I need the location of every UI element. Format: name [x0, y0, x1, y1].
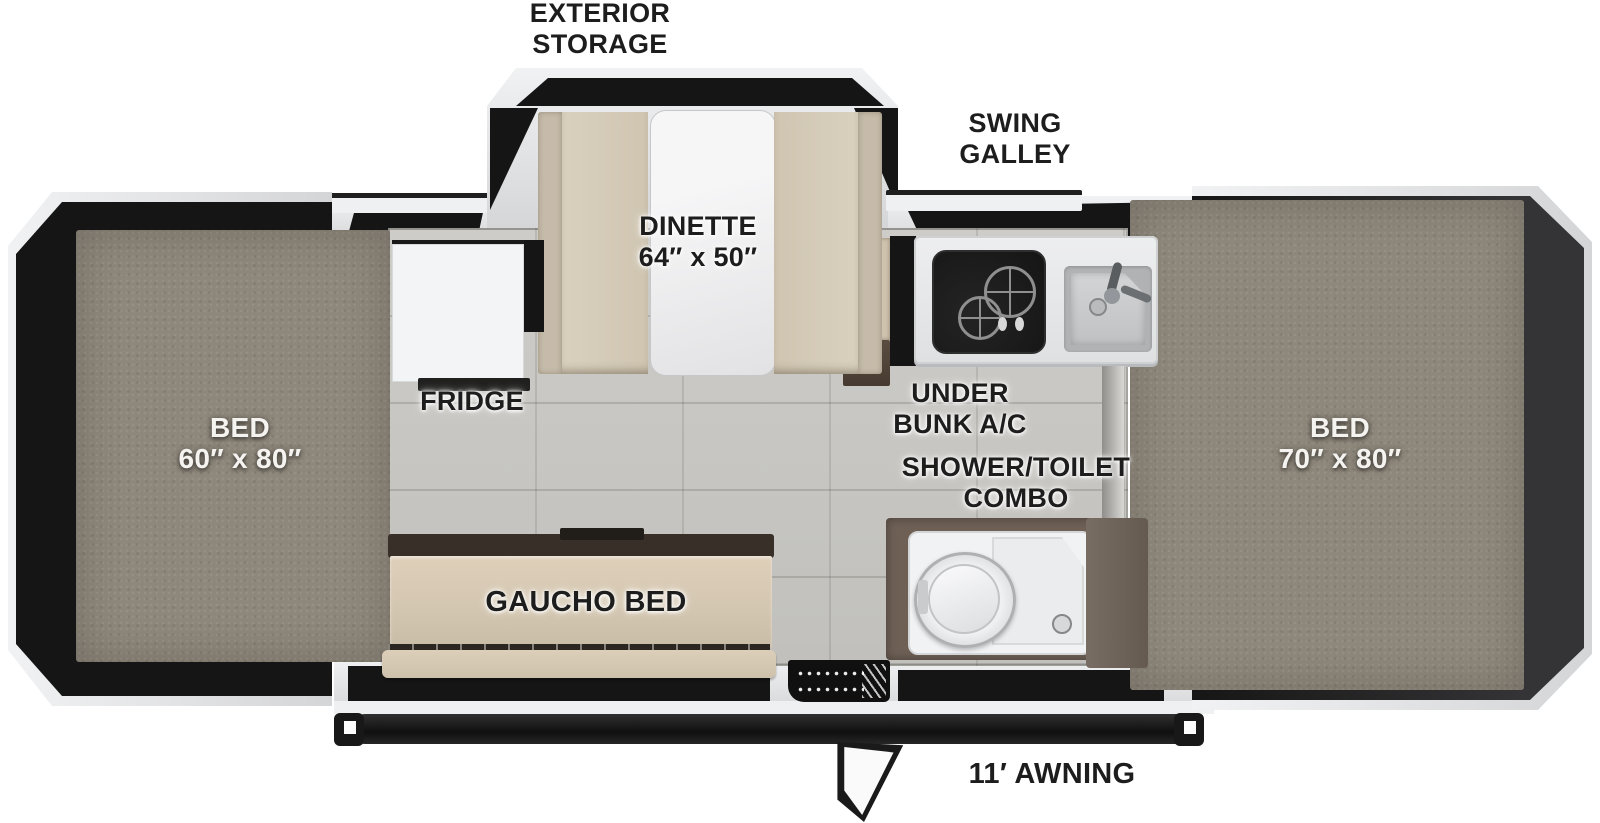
- label-under-bunk-ac: UNDER BUNK A/C: [893, 378, 1026, 440]
- label-fridge: FRIDGE: [420, 386, 524, 417]
- fridge-box: [392, 240, 524, 382]
- stove-knob-left: [998, 317, 1007, 331]
- awning-roller-bar: [350, 714, 1204, 744]
- toilet-hinge-icon: [918, 580, 928, 614]
- awning-bracket-left: [334, 713, 364, 746]
- gaucho-bed-seat-edge: [382, 650, 776, 678]
- label-swing-galley: SWING GALLEY: [959, 108, 1070, 170]
- gaucho-bed-rail-box: [560, 528, 644, 540]
- sink-drain-icon: [1089, 298, 1107, 316]
- awning-bracket-right: [1174, 713, 1204, 746]
- awning-bracket-right-notch: [1184, 721, 1196, 734]
- step-mat-hatch: [862, 664, 886, 698]
- label-bed-right: BED 70″ x 80″: [1279, 412, 1402, 474]
- fridge-side-panel: [524, 240, 544, 332]
- label-bed-left: BED 60″ x 80″: [179, 412, 302, 474]
- step-mat-dots-row2: [796, 685, 864, 695]
- stove-cooktop: [932, 250, 1046, 354]
- label-shower-toilet-combo: SHOWER/TOILET COMBO: [902, 452, 1130, 514]
- toilet-lid-icon: [928, 564, 1000, 634]
- step-mat-dots-row1: [796, 669, 864, 679]
- faucet-base-icon: [1104, 288, 1120, 304]
- label-exterior-storage: EXTERIOR STORAGE: [530, 0, 670, 60]
- label-dinette: DINETTE 64″ x 50″: [639, 211, 758, 273]
- galley-divider-panel: [890, 236, 916, 366]
- shower-drain-icon: [1052, 614, 1072, 634]
- exterior-storage-tray-left: [324, 193, 504, 213]
- dinette-bench-right-seat: [774, 112, 858, 374]
- awning-bracket-left-notch: [344, 721, 356, 734]
- entry-step-mat: [788, 660, 890, 702]
- popup-camper-floorplan: EXTERIOR STORAGE SWING GALLEY DINETTE 64…: [0, 0, 1600, 823]
- dinette-bench-right-back: [858, 112, 882, 374]
- bath-side-cabinet: [1086, 518, 1148, 668]
- label-gaucho-bed: GAUCHO BED: [485, 587, 686, 618]
- stove-burner-large-icon: [984, 266, 1036, 318]
- swing-galley-fold-rail: [886, 190, 1082, 211]
- label-awning: 11′ AWNING: [969, 759, 1136, 790]
- bottom-wall-trim: [334, 701, 1214, 714]
- dinette-bench-left-seat: [562, 112, 648, 374]
- stove-knob-right: [1015, 317, 1024, 331]
